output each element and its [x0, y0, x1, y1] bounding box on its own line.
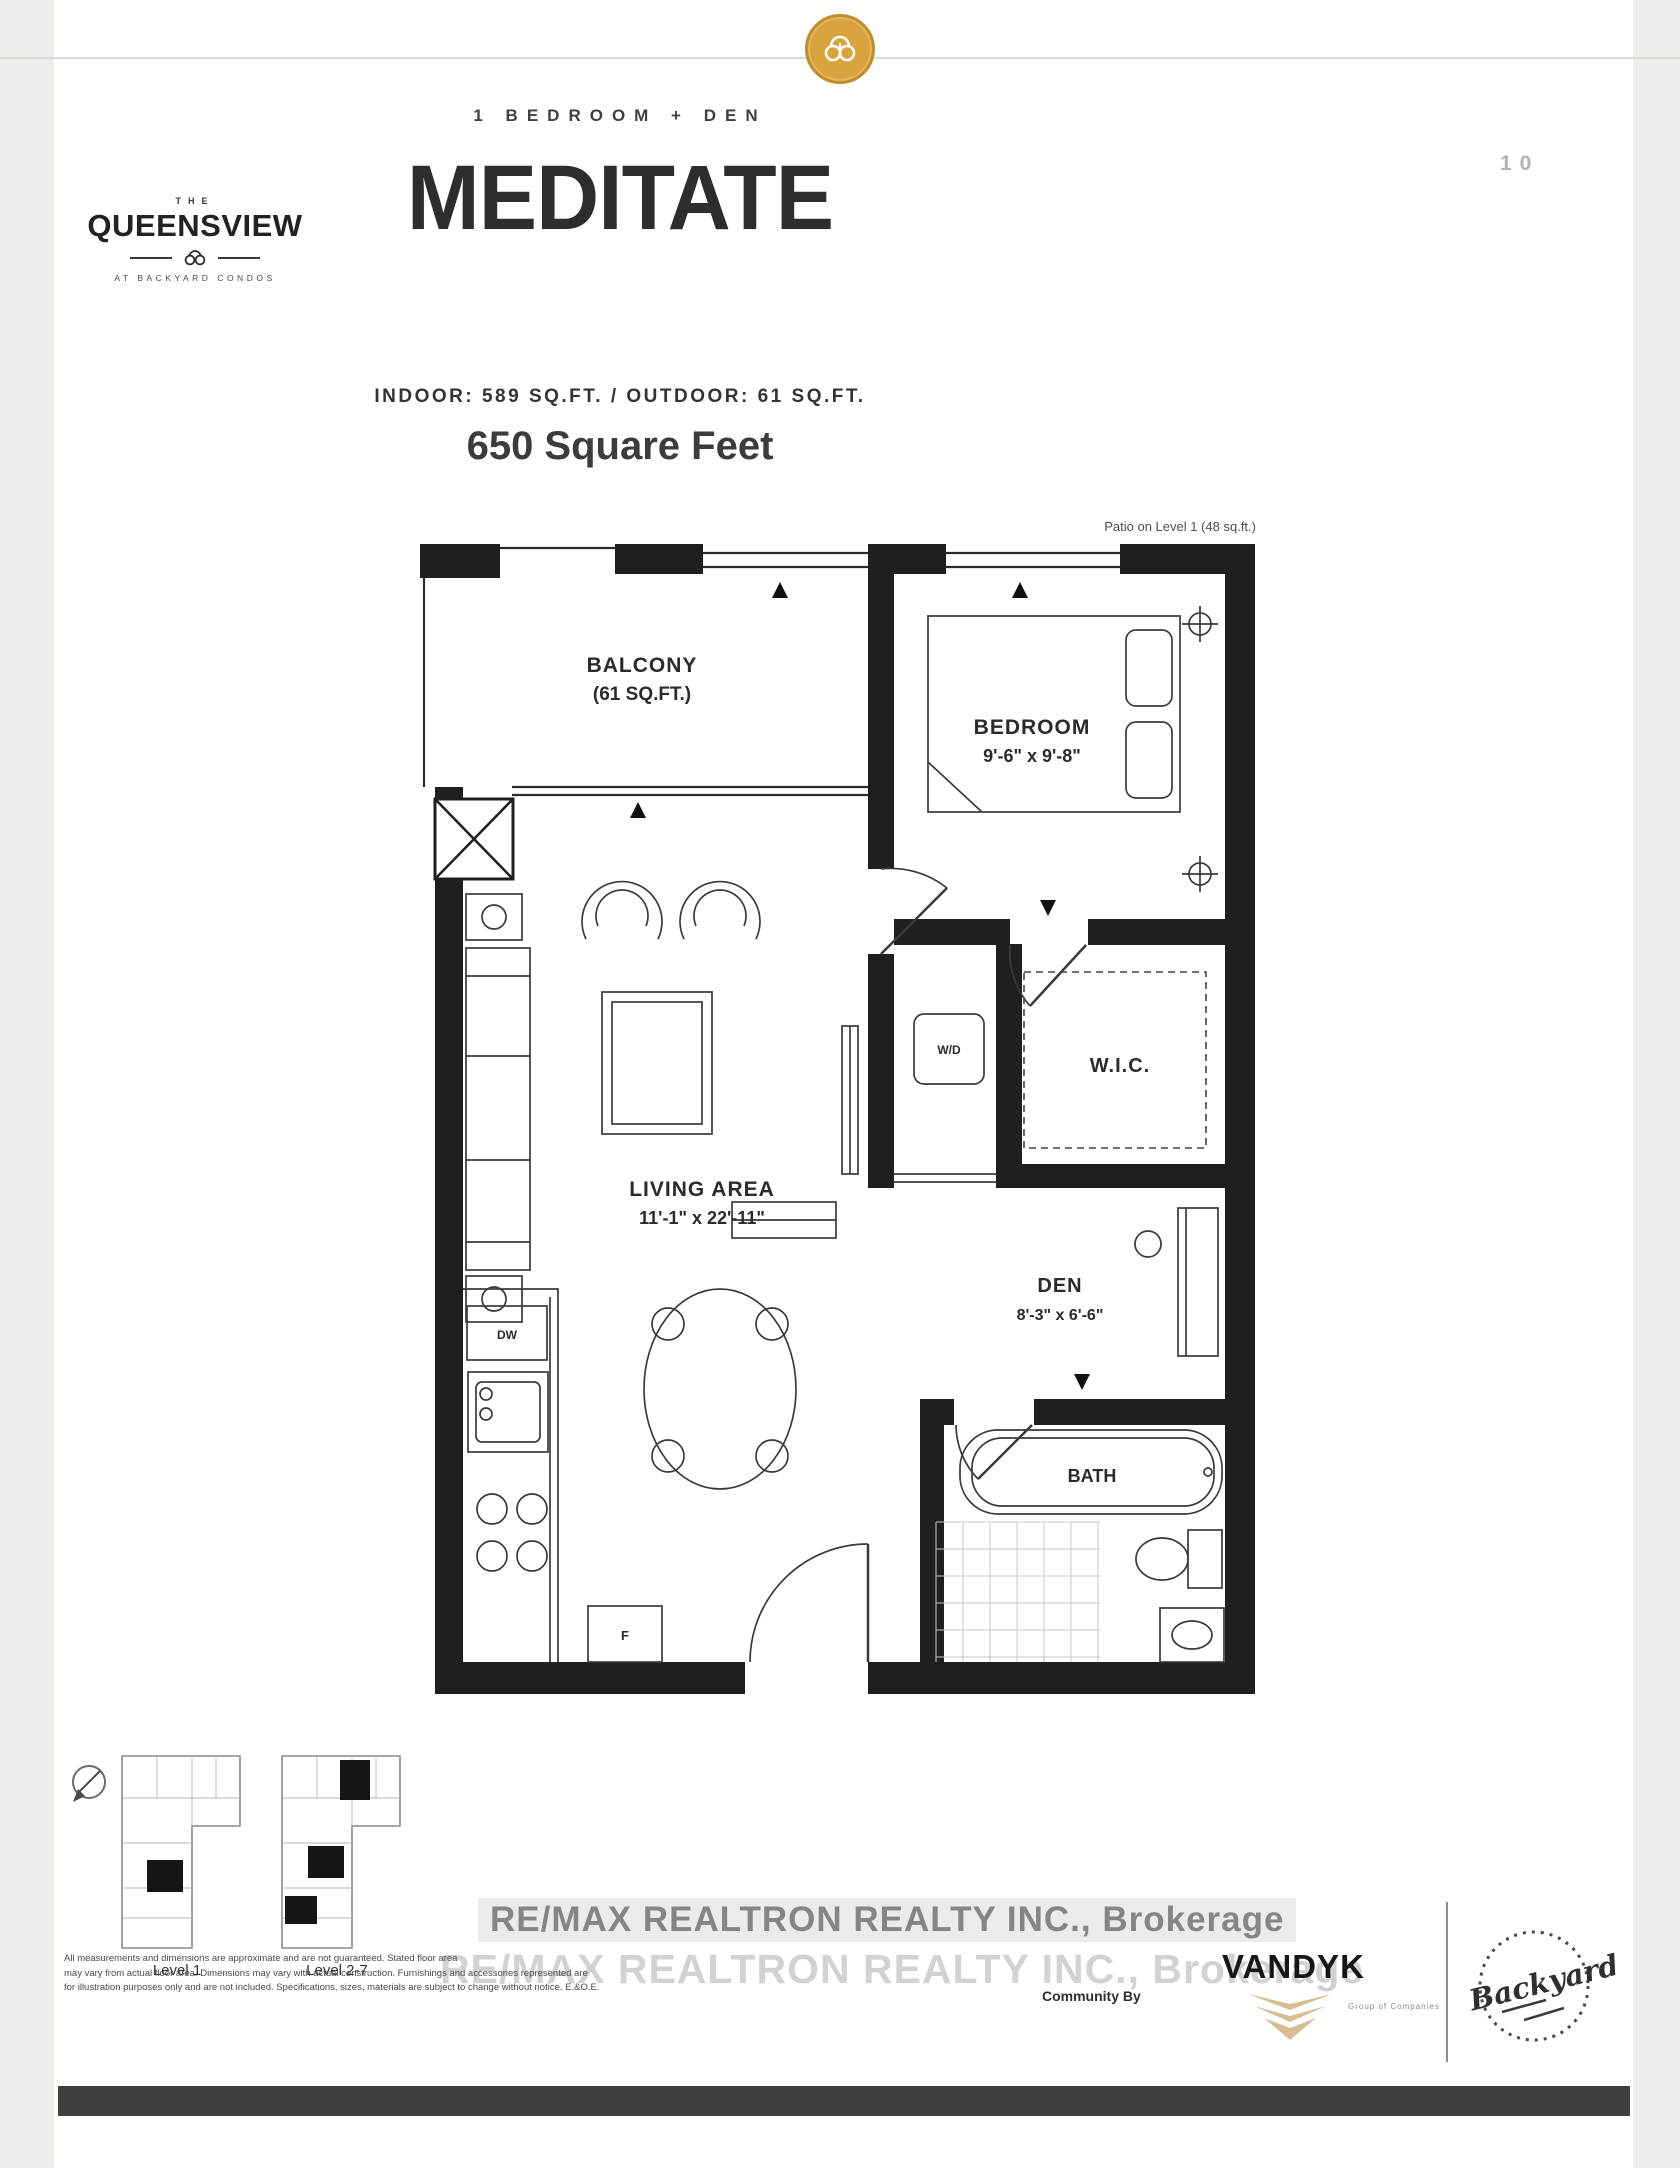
- arrow-up-icon: [772, 582, 788, 598]
- dining-chair: [756, 1308, 788, 1340]
- bath-door-leaf: [978, 1425, 1032, 1479]
- end-table: [466, 1276, 522, 1322]
- living-label: LIVING AREA: [629, 1178, 775, 1201]
- faucet: [480, 1388, 492, 1400]
- area-line: INDOOR: 589 SQ.FT. / OUTDOOR: 61 SQ.FT.: [374, 386, 865, 407]
- column-hatched: [435, 799, 513, 879]
- sofa: [466, 948, 530, 1270]
- bedroom-dims: 9'-6" x 9'-8": [983, 746, 1081, 766]
- room-labels: BALCONY (61 SQ.FT.) BEDROOM 9'-6" x 9'-8…: [497, 654, 1150, 1643]
- bedroom-label: BEDROOM: [974, 716, 1091, 739]
- arrow-down-icon: [1040, 900, 1056, 916]
- wic-door-leaf: [1030, 945, 1086, 1006]
- furniture: [463, 606, 1224, 1662]
- area-line-row: INDOOR: 589 SQ.FT. / OUTDOOR: 61 SQ.FT.: [330, 386, 910, 408]
- community-by-label: Community By: [1042, 1988, 1141, 2004]
- stove-burner: [517, 1494, 547, 1524]
- bath-tiles: [936, 1522, 1100, 1662]
- brokerage-watermark-1: RE/MAX REALTRON REALTY INC., Brokerage: [478, 1898, 1296, 1942]
- vandyk-diamond-icon: [1238, 1990, 1342, 2044]
- sink: [476, 1382, 540, 1442]
- stove-burner: [517, 1541, 547, 1571]
- wd-closet-doors: [894, 1174, 996, 1182]
- footer-divider: [1446, 1902, 1448, 2062]
- queensview-logo: THE QUEENSVIEW AT BACKYARD CONDOS: [66, 196, 324, 283]
- brand-mark-row: [66, 250, 324, 266]
- bed: [928, 616, 1180, 812]
- coffee-table: [602, 992, 712, 1134]
- arrow-down-icon: [1074, 1374, 1090, 1390]
- brand-rule-right: [218, 257, 260, 259]
- brand-rule-left: [130, 257, 172, 259]
- toilet-tank: [1188, 1530, 1222, 1588]
- unit-name-row: MEDITATE: [330, 146, 910, 251]
- total-area-row: 650 Square Feet: [330, 424, 910, 469]
- entry-door-arc: [750, 1544, 868, 1662]
- stool: [1135, 1231, 1161, 1257]
- bedroom-door-arc: [881, 868, 947, 888]
- brand-the: THE: [66, 196, 324, 206]
- dining-chair: [652, 1440, 684, 1472]
- vandyk-tagline: Group of Companies: [1348, 2002, 1440, 2011]
- dining-chair: [652, 1308, 684, 1340]
- right-margin: [1633, 0, 1680, 2168]
- pillow: [1126, 722, 1172, 798]
- walls: [420, 544, 1255, 1694]
- lounge-chair-cushion: [596, 890, 648, 926]
- disclaimer-line: for illustration purposes only and are n…: [64, 1981, 664, 1996]
- patio-note: Patio on Level 1 (48 sq.ft.): [1010, 519, 1256, 534]
- keyplan-level-2-7: [252, 1748, 422, 1958]
- living-dims: 11'-1" x 22'-11": [639, 1208, 765, 1228]
- tub-faucet: [1204, 1468, 1212, 1476]
- lamp: [482, 905, 506, 929]
- backyard-stamp-logo: Backyard: [1468, 1916, 1600, 2056]
- unit-marker: [285, 1896, 317, 1924]
- bed-fold: [928, 762, 982, 812]
- unit-type-row: 1 BEDROOM + DEN: [330, 106, 910, 126]
- coffee-table-inner: [612, 1002, 702, 1124]
- lamp: [482, 1287, 506, 1311]
- balcony-label: BALCONY: [587, 654, 698, 677]
- unit-type: 1 BEDROOM + DEN: [473, 106, 766, 125]
- den-label: DEN: [1037, 1275, 1082, 1297]
- brand-name: QUEENSVIEW: [66, 208, 324, 244]
- fridge-label: F: [621, 1628, 629, 1643]
- left-margin: [0, 0, 54, 2168]
- page-number: 10: [1500, 152, 1539, 176]
- floorplan-drawing: BALCONY (61 SQ.FT.) BEDROOM 9'-6" x 9'-8…: [420, 544, 1255, 1696]
- binoculars-badge-icon: [805, 14, 875, 84]
- arrow-up-icon: [1012, 582, 1028, 598]
- vanity-sink: [1172, 1621, 1212, 1649]
- faucet: [480, 1408, 492, 1420]
- stove-burner: [477, 1494, 507, 1524]
- bath-label: BATH: [1068, 1466, 1117, 1486]
- bottom-bar: [58, 2086, 1630, 2116]
- wic-label: W.I.C.: [1090, 1055, 1150, 1077]
- page-title: MEDITATE: [345, 146, 896, 251]
- vandyk-logo: VANDYK: [1222, 1948, 1365, 1986]
- dining-chair: [756, 1440, 788, 1472]
- toilet-bowl: [1136, 1538, 1188, 1580]
- arrow-up-icon: [630, 802, 646, 818]
- den-dims: 8'-3" x 6'-6": [1017, 1307, 1104, 1324]
- disclaimer-line: may vary from actual floor area. Dimensi…: [64, 1967, 664, 1982]
- brand-tagline: AT BACKYARD CONDOS: [66, 273, 324, 283]
- sofa-cushions: [466, 976, 530, 1242]
- disclaimer-line: All measurements and dimensions are appr…: [64, 1952, 664, 1967]
- brand-binoculars-icon: [180, 250, 210, 266]
- desk: [1178, 1208, 1218, 1356]
- floorplan-sheet: THE QUEENSVIEW AT BACKYARD CONDOS 1 BEDR…: [0, 0, 1680, 2168]
- end-table: [466, 894, 522, 940]
- unit-marker: [147, 1860, 183, 1892]
- total-area: 650 Square Feet: [467, 424, 774, 468]
- dining-table: [644, 1289, 796, 1489]
- binoculars-icon: [820, 29, 860, 69]
- keyplan-level-1: [92, 1748, 262, 1958]
- kitchen-counter: [463, 1289, 558, 1662]
- wd-label: W/D: [937, 1043, 961, 1057]
- dishwasher-label: DW: [497, 1328, 518, 1342]
- unit-marker: [340, 1760, 370, 1800]
- pillow: [1126, 630, 1172, 706]
- disclaimer: All measurements and dimensions are appr…: [64, 1952, 664, 1996]
- unit-marker: [308, 1846, 344, 1878]
- stove-burner: [477, 1541, 507, 1571]
- balcony-dims: (61 SQ.FT.): [593, 684, 691, 705]
- vanity: [1160, 1608, 1224, 1662]
- lounge-chair-cushion: [694, 890, 746, 926]
- light-symbol: [1182, 606, 1218, 892]
